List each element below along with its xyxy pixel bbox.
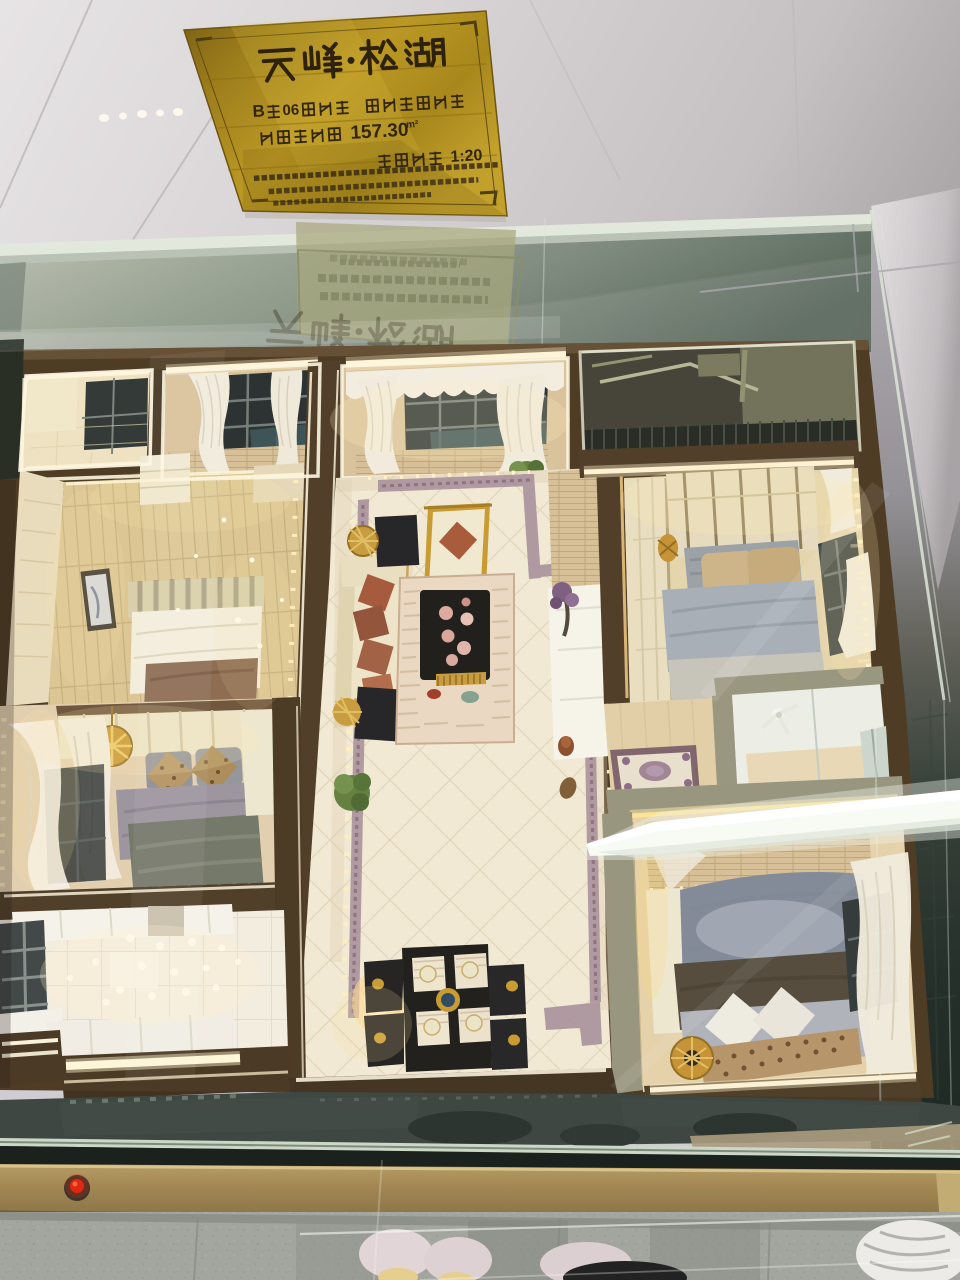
svg-text:1:20: 1:20 xyxy=(450,147,483,166)
svg-text:157.30: 157.30 xyxy=(350,120,409,144)
svg-text:m²: m² xyxy=(406,119,419,131)
svg-text:B: B xyxy=(252,101,265,121)
svg-text:06: 06 xyxy=(282,101,300,119)
